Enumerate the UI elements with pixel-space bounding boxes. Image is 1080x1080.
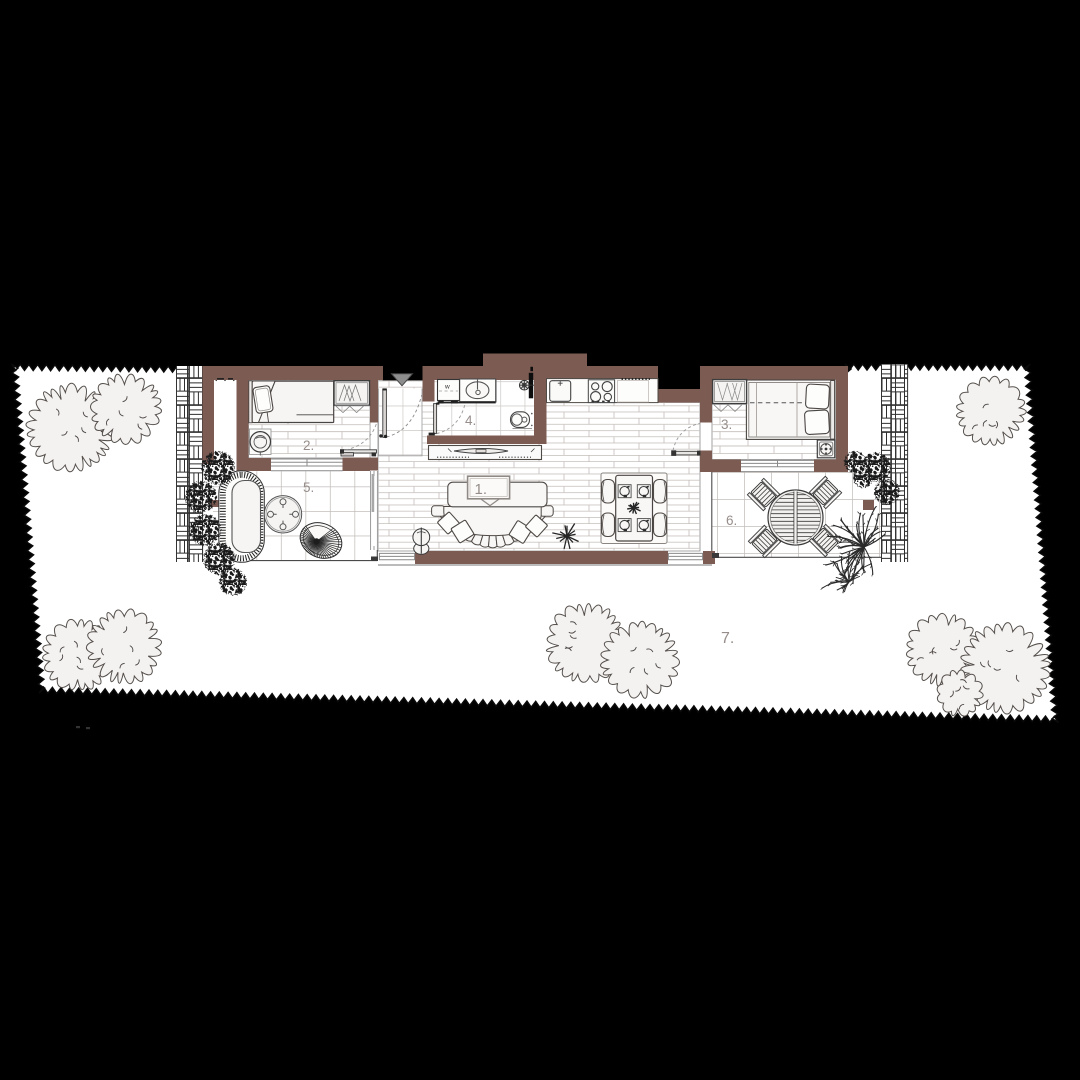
svg-text:w: w xyxy=(444,384,450,391)
svg-text:3.: 3. xyxy=(721,417,732,432)
svg-text:7.: 7. xyxy=(721,630,734,647)
svg-text:1.: 1. xyxy=(475,481,488,498)
svg-text:4.: 4. xyxy=(465,413,476,428)
svg-text:6.: 6. xyxy=(726,513,737,528)
svg-text:2.: 2. xyxy=(303,438,314,453)
svg-text:5.: 5. xyxy=(303,480,314,495)
